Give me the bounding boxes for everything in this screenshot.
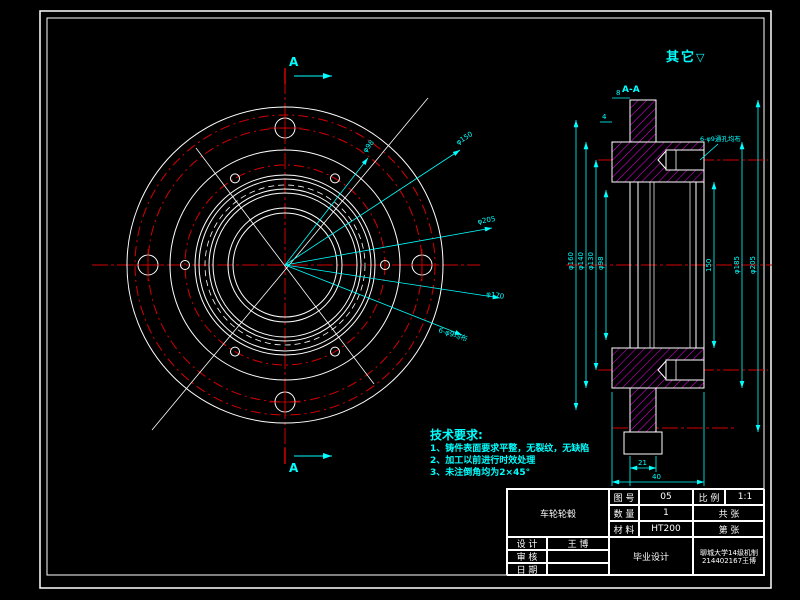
dim-label: φ98 [361,139,376,155]
date-value [547,563,609,576]
checker-name [547,550,609,563]
dim-label: φ185 [733,256,741,274]
title-block: 车轮轮毂 图 号 05 比 例 1:1 数 量 1 共 张 材 料 HT200 … [506,488,764,575]
section-view-title: A-A [622,85,640,95]
side-section-view: A-A [566,85,772,486]
dim-label: φ98 [597,256,605,270]
sheet-no: 第 张 [693,521,765,537]
dim-label: 4 [602,113,607,121]
techreq-title: 技术要求: [430,429,589,441]
material-value: HT200 [639,521,693,537]
techreq-item-1: 1、铸件表面要求平整，无裂纹，无缺陷 [430,443,589,455]
bolt-note: 6-φ9通孔均布 [700,134,741,143]
project-name: 毕业设计 [609,537,693,576]
quantity-value: 1 [639,505,693,521]
dim-label: φ160 [567,252,575,270]
material-label: 材 料 [609,521,639,537]
part-name: 车轮轮毂 [507,489,609,537]
leader-labels: φ98 φ150 φ205 φ170 6-φ9均布 [361,130,504,343]
techreq-item-3: 3、未注倒角均为2×45° [430,467,589,479]
roughness-symbol-icon: ▽ [696,51,706,64]
check-label: 审 核 [507,550,547,563]
drawing-no-value: 05 [639,489,693,505]
date-label: 日 期 [507,563,547,576]
scale-value: 1:1 [725,489,765,505]
org-line-2: 214402167王博 [702,557,756,565]
section-label-bottom: A [289,461,299,475]
design-label: 设 计 [507,537,547,550]
dim-label: φ140 [577,252,585,270]
dim-label: φ170 [486,290,505,301]
dim-label: 6-φ9均布 [437,325,468,343]
front-view: φ98 φ150 φ205 φ170 6-φ9均布 A A [92,55,505,475]
sheet-total: 共 张 [693,505,765,521]
dimension-leaders [285,150,500,335]
cad-drawing-canvas: φ98 φ150 φ205 φ170 6-φ9均布 A A A-A [0,0,800,600]
section-label-top: A [289,55,299,69]
scale-label: 比 例 [693,489,725,505]
surface-finish-mark: 其它▽ [666,46,706,65]
dim-label: φ150 [455,130,474,147]
technical-requirements: 技术要求: 1、铸件表面要求平整，无裂纹，无缺陷 2、加工以前进行时效处理 3、… [430,429,589,479]
techreq-item-2: 2、加工以前进行时效处理 [430,455,589,467]
dim-label: 8 [616,89,620,97]
dim-label: φ205 [477,215,496,226]
drawing-no-label: 图 号 [609,489,639,505]
dim-label: 21 [638,459,647,467]
designer-name: 王 博 [547,537,609,550]
organization: 聊城大学14级机制 214402167王博 [693,537,765,576]
dim-label: φ205 [749,256,757,274]
dim-label: φ130 [587,252,595,270]
dim-label: 40 [652,473,661,481]
org-line-1: 聊城大学14级机制 [700,549,758,557]
surface-finish-label: 其它 [666,50,696,65]
dim-label: 150 [705,259,713,272]
quantity-label: 数 量 [609,505,639,521]
